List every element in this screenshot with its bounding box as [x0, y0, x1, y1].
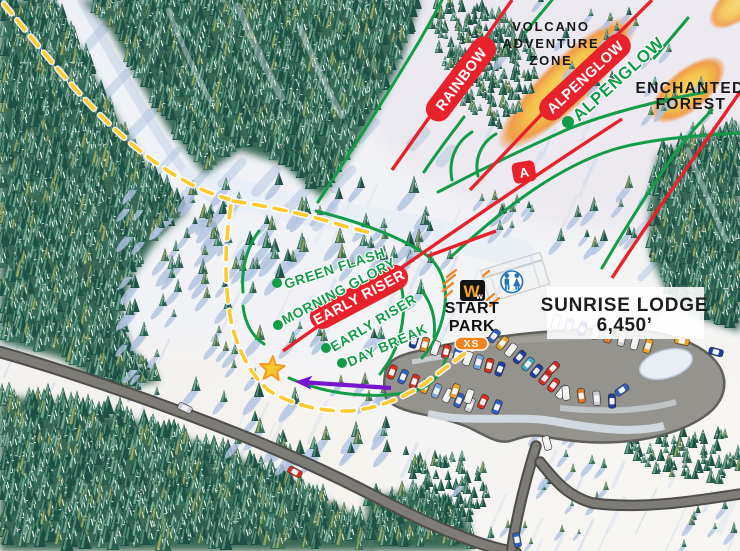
svg-text:6,450’: 6,450’ — [597, 315, 653, 336]
svg-text:START: START — [445, 300, 500, 317]
svg-text:ENCHANTED: ENCHANTED — [635, 80, 740, 97]
svg-text:ADVENTURE: ADVENTURE — [502, 36, 599, 51]
svg-text:PARK: PARK — [449, 318, 495, 335]
svg-text:ZONE: ZONE — [529, 53, 572, 68]
svg-text:VOLCANO: VOLCANO — [512, 19, 590, 34]
svg-text:FOREST: FOREST — [656, 96, 727, 113]
svg-text:XS: XS — [463, 338, 479, 350]
svg-text:SUNRISE LODGE: SUNRISE LODGE — [541, 295, 709, 316]
